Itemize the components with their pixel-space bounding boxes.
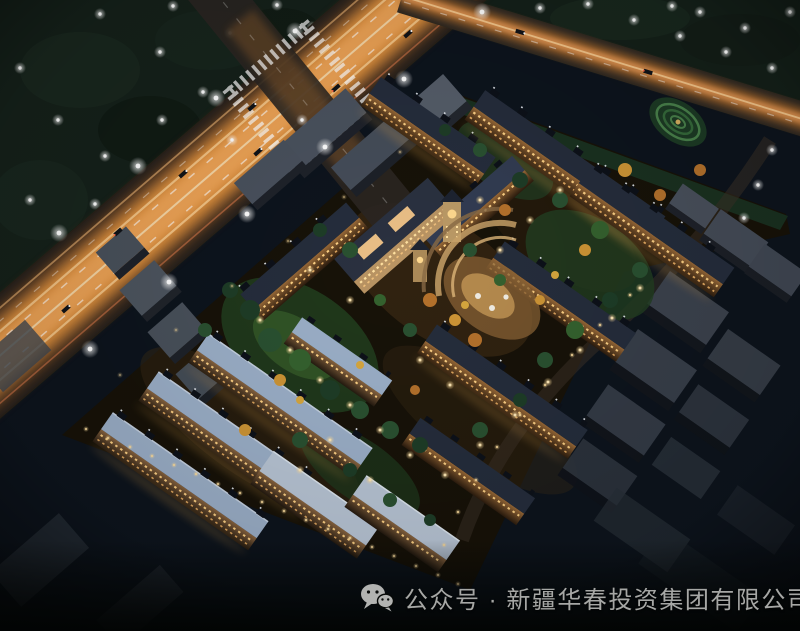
- caption-text: 公众号 · 新疆华春投资集团有限公司: [404, 580, 800, 615]
- watermark-caption: 公众号 · 新疆华春投资集团有限公司: [360, 576, 800, 618]
- aerial-night-rendering: [0, 0, 800, 631]
- screenshot-root: 公众号 · 新疆华春投资集团有限公司: [0, 0, 800, 631]
- wechat-icon: [360, 582, 394, 612]
- vignette: [0, 0, 800, 631]
